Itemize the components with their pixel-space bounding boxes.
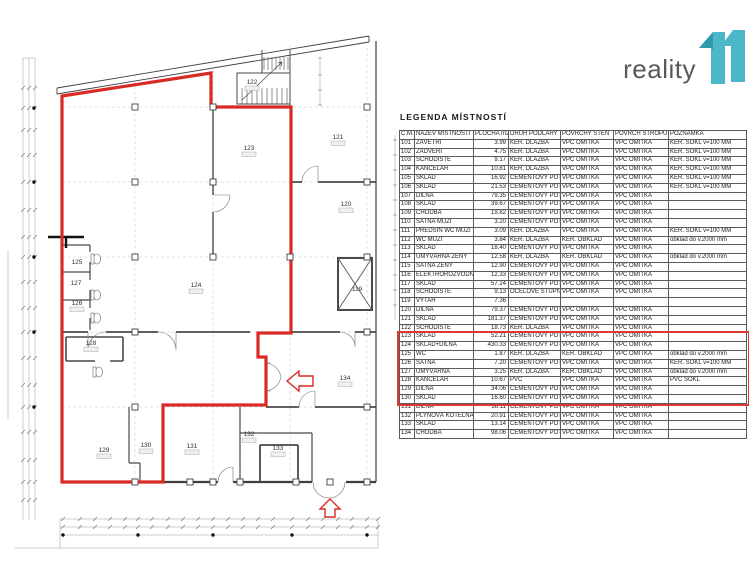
- legend-cell: 18.40: [474, 245, 509, 254]
- column-marker: [364, 404, 370, 410]
- column-marker: [187, 479, 193, 485]
- legend-cell: CEMENTOVÝ POTĚR: [509, 386, 561, 395]
- legend-cell: 109: [400, 210, 415, 219]
- legend-cell: SKLAD: [415, 280, 474, 289]
- legend-title: LEGENDA MÍSTNOSTÍ: [400, 112, 748, 122]
- column-marker: [132, 179, 138, 185]
- legend-cell: [669, 412, 747, 421]
- legend-cell: CHODBA: [415, 210, 474, 219]
- legend-cell: 1.87: [474, 350, 509, 359]
- column-marker: [364, 254, 370, 260]
- legend-cell: CEMENTOVÝ POTĚR: [509, 342, 561, 351]
- legend-row: 127UMÝVÁRNA3.25KER. DLAŽBAKER. OBKLADVPC…: [400, 368, 747, 377]
- legend-cell: 101: [400, 139, 415, 148]
- legend-cell: KER. SOKL v=100 MM: [669, 139, 747, 148]
- legend-cell: [669, 262, 747, 271]
- legend-cell: KER. SOKL v=100 MM: [669, 359, 747, 368]
- legend-cell: KER. DLAŽBA: [509, 350, 561, 359]
- legend-cell: 9.13: [474, 289, 509, 298]
- legend-cell: [669, 430, 747, 439]
- legend-cell: PŘEDSÍŇ WC MUŽI: [415, 227, 474, 236]
- legend-cell: VPC OMÍTKA: [614, 403, 669, 412]
- legend-cell: [669, 333, 747, 342]
- legend-cell: 13.14: [474, 421, 509, 430]
- legend-cell: 121: [400, 315, 415, 324]
- legend-cell: 12.58: [474, 254, 509, 263]
- legend-cell: 102: [400, 148, 415, 157]
- legend-cell: [669, 324, 747, 333]
- room-sublabel-box: [97, 454, 111, 459]
- legend-cell: 128: [400, 377, 415, 386]
- legend-cell: ZÁVĚTŘÍ: [415, 139, 474, 148]
- legend-cell: 116: [400, 271, 415, 280]
- legend-cell: VPC OMÍTKA: [561, 377, 614, 386]
- legend-cell: obklad do v.2000 mm: [669, 350, 747, 359]
- legend-cell: SKLAD: [415, 245, 474, 254]
- legend-cell: VPC OMÍTKA: [561, 430, 614, 439]
- plan-grid: [62, 45, 376, 482]
- legend-cell: 114: [400, 254, 415, 263]
- legend-col-header: POZNÁMKA: [669, 131, 747, 140]
- legend-cell: 127: [400, 368, 415, 377]
- legend-row: 132PLYNOVÁ KOTELNA20.91CEMENTOVÝ POTĚRVP…: [400, 412, 747, 421]
- legend-cell: 120: [400, 306, 415, 315]
- legend-cell: 3.20: [474, 218, 509, 227]
- room-label: 128: [86, 340, 97, 347]
- legend-cell: [669, 201, 747, 210]
- legend-cell: VPC OMÍTKA: [614, 430, 669, 439]
- legend-cell: VPC OMÍTKA: [614, 192, 669, 201]
- legend-row: 118SCHODIŠTĚ9.13OCELOVÉ STUPNĚVPC OMÍTKA…: [400, 289, 747, 298]
- logo-text: reality: [623, 56, 696, 86]
- legend-cell: VPC OMÍTKA: [561, 386, 614, 395]
- legend-cell: VPC OMÍTKA: [614, 245, 669, 254]
- column-marker: [364, 329, 370, 335]
- legend-col-header: POVRCHY STĚN: [561, 131, 614, 140]
- legend-cell: 105: [400, 174, 415, 183]
- column-marker: [210, 104, 216, 110]
- column-marker: [210, 254, 216, 260]
- legend-cell: 79.35: [474, 192, 509, 201]
- legend-cell: 52.21: [474, 333, 509, 342]
- legend-row: 110ŠATNA MUŽI3.20CEMENTOVÝ POTĚRVPC OMÍT…: [400, 218, 747, 227]
- legend-cell: 122: [400, 324, 415, 333]
- column-marker: [210, 179, 216, 185]
- legend-cell: 3.09: [474, 227, 509, 236]
- legend-cell: 7.20: [474, 359, 509, 368]
- legend-cell: 181.37: [474, 315, 509, 324]
- legend-cell: [669, 298, 747, 307]
- legend-cell: VPC OMÍTKA: [561, 210, 614, 219]
- legend-cell: SKLAD: [415, 174, 474, 183]
- legend-cell: [669, 342, 747, 351]
- legend-cell: CHODBA: [415, 430, 474, 439]
- legend-cell: VPC OMÍTKA: [561, 333, 614, 342]
- legend-cell: 124: [400, 342, 415, 351]
- legend-cell: VPC OMÍTKA: [614, 157, 669, 166]
- legend-cell: VPC OMÍTKA: [561, 148, 614, 157]
- legend-row: 111PŘEDSÍŇ WC MUŽI3.09KER. DLAŽBAVPC OMÍ…: [400, 227, 747, 236]
- room-sublabel-box: [331, 141, 345, 146]
- legend-cell: 115: [400, 262, 415, 271]
- legend-cell: 4.75: [474, 148, 509, 157]
- legend-cell: [669, 245, 747, 254]
- legend-cell: SKLAD: [415, 333, 474, 342]
- legend-cell: DÍLNA: [415, 386, 474, 395]
- legend-cell: 129: [400, 386, 415, 395]
- room-sublabel-box: [338, 382, 352, 387]
- legend-cell: 108: [400, 201, 415, 210]
- legend-cell: KER. DLAŽBA: [509, 236, 561, 245]
- legend-cell: 117: [400, 280, 415, 289]
- legend-row: 129DÍLNA34.06CEMENTOVÝ POTĚRVPC OMÍTKAVP…: [400, 386, 747, 395]
- legend-cell: VPC OMÍTKA: [614, 394, 669, 403]
- legend-cell: VPC OMÍTKA: [561, 139, 614, 148]
- legend-cell: SKLAD: [415, 421, 474, 430]
- section-marker: [48, 237, 84, 248]
- legend-cell: KER. DLAŽBA: [509, 324, 561, 333]
- legend-cell: 57.24: [474, 280, 509, 289]
- legend-cell: 104: [400, 166, 415, 175]
- legend-cell: VPC OMÍTKA: [614, 306, 669, 315]
- legend-cell: 126: [400, 359, 415, 368]
- legend-cell: [669, 210, 747, 219]
- legend-cell: 16.92: [474, 174, 509, 183]
- legend-col-header: NÁZEV MÍSTNOSTI: [415, 131, 474, 140]
- legend-cell: KER. SOKL v=100 MM: [669, 148, 747, 157]
- legend-cell: VPC OMÍTKA: [561, 359, 614, 368]
- room-sublabel-box: [245, 86, 259, 91]
- legend-cell: VPC OMÍTKA: [561, 421, 614, 430]
- legend-cell: SCHODIŠTĚ: [415, 289, 474, 298]
- legend-cell: VPC OMÍTKA: [614, 386, 669, 395]
- legend-row: 130SKLAD16.60CEMENTOVÝ POTĚRVPC OMÍTKAVP…: [400, 394, 747, 403]
- legend-cell: CEMENTOVÝ POTĚR: [509, 218, 561, 227]
- room-sublabel-box: [84, 347, 98, 352]
- legend-cell: KER. DLAŽBA: [509, 139, 561, 148]
- column-marker: [210, 479, 216, 485]
- legend-cell: 112: [400, 236, 415, 245]
- legend-cell: VPC OMÍTKA: [614, 412, 669, 421]
- legend-cell: VÝTAH: [415, 298, 474, 307]
- legend-cell: VPC OMÍTKA: [561, 201, 614, 210]
- legend-cell: 12.90: [474, 262, 509, 271]
- legend-cell: OCELOVÉ STUPNĚ: [509, 289, 561, 298]
- legend-cell: obklad do v.2000 mm: [669, 236, 747, 245]
- legend-col-header: PLOCHA m2: [474, 131, 509, 140]
- legend-cell: WC: [415, 350, 474, 359]
- column-marker: [364, 104, 370, 110]
- legend-cell: 119: [400, 298, 415, 307]
- legend-cell: KER. DLAŽBA: [509, 148, 561, 157]
- legend-panel: LEGENDA MÍSTNOSTÍ Č.M.NÁZEV MÍSTNOSTIPLO…: [399, 112, 748, 439]
- legend-cell: KER. DLAŽBA: [509, 368, 561, 377]
- legend-cell: VPC OMÍTKA: [561, 166, 614, 175]
- legend-cell: 111: [400, 227, 415, 236]
- legend-cell: KER. SOKL v=100 MM: [669, 157, 747, 166]
- legend-cell: SKLAD: [415, 183, 474, 192]
- room-sublabel-box: [271, 452, 285, 457]
- legend-cell: CEMENTOVÝ POTĚR: [509, 412, 561, 421]
- legend-row: 125WC1.87KER. DLAŽBAKER. OBKLADVPC OMÍTK…: [400, 350, 747, 359]
- room-label: 130: [141, 442, 152, 449]
- legend-cell: [669, 218, 747, 227]
- legend-cell: VPC OMÍTKA: [614, 315, 669, 324]
- elevator: [338, 258, 372, 310]
- legend-row: 122SCHODIŠTĚ18.73KER. DLAŽBAVPC OMÍTKAVP…: [400, 324, 747, 333]
- legend-row: 108SKLAD39.67CEMENTOVÝ POTĚRVPC OMÍTKAVP…: [400, 201, 747, 210]
- legend-col-header: POVRCH STROPU: [614, 131, 669, 140]
- legend-cell: CEMENTOVÝ POTĚR: [509, 359, 561, 368]
- legend-cell: PLYNOVÁ KOTELNA: [415, 412, 474, 421]
- legend-cell: 16.60: [474, 394, 509, 403]
- column-marker: [132, 404, 138, 410]
- logo: reality: [602, 24, 747, 86]
- legend-cell: 125: [400, 350, 415, 359]
- legend-cell: [669, 289, 747, 298]
- legend-cell: VPC OMÍTKA: [614, 280, 669, 289]
- column-marker: [293, 479, 299, 485]
- legend-cell: VPC OMÍTKA: [561, 289, 614, 298]
- highlight-outline: [62, 73, 291, 482]
- legend-cell: VPC OMÍTKA: [614, 359, 669, 368]
- column-marker: [132, 479, 138, 485]
- legend-cell: 10.67: [474, 377, 509, 386]
- room-label: 131: [187, 443, 198, 450]
- legend-cell: VPC OMÍTKA: [614, 227, 669, 236]
- legend-cell: 34.06: [474, 386, 509, 395]
- legend-cell: VPC OMÍTKA: [561, 324, 614, 333]
- legend-cell: obklad do v.2000 mm: [669, 254, 747, 263]
- legend-cell: KER. OBKLAD: [561, 368, 614, 377]
- legend-cell: 110: [400, 218, 415, 227]
- legend-cell: VPC OMÍTKA: [561, 342, 614, 351]
- room-sublabel-box: [242, 152, 256, 157]
- room-label: 121: [333, 134, 344, 141]
- room-label: 119: [352, 286, 363, 293]
- room-label: 120: [341, 201, 352, 208]
- legend-cell: DÍLNA: [415, 403, 474, 412]
- column-marker: [237, 479, 243, 485]
- entrance-arrows: [287, 371, 340, 517]
- legend-cell: KER. OBKLAD: [561, 236, 614, 245]
- column-marker: [364, 479, 370, 485]
- building-outline: [57, 36, 376, 482]
- legend-cell: 10.81: [474, 166, 509, 175]
- legend-cell: KER. DLAŽBA: [509, 166, 561, 175]
- legend-cell: DÍLNA: [415, 192, 474, 201]
- legend-row: 102ZÁDVEŘÍ4.75KER. DLAŽBAVPC OMÍTKAVPC O…: [400, 148, 747, 157]
- room-label: 126: [72, 300, 83, 307]
- legend-cell: SKLAD: [415, 201, 474, 210]
- legend-cell: 79.37: [474, 306, 509, 315]
- legend-cell: KER. OBKLAD: [561, 350, 614, 359]
- column-marker: [364, 179, 370, 185]
- legend-cell: [669, 403, 747, 412]
- legend-cell: obklad do v.2000 mm: [669, 368, 747, 377]
- legend-cell: 107: [400, 192, 415, 201]
- legend-row: 119VÝTAH7.36: [400, 298, 747, 307]
- arrow-left-icon: [287, 371, 313, 391]
- legend-cell: VPC OMÍTKA: [561, 262, 614, 271]
- legend-cell: 103: [400, 157, 415, 166]
- legend-cell: VPC OMÍTKA: [614, 271, 669, 280]
- legend-cell: 133: [400, 421, 415, 430]
- legend-cell: KANCELÁŘ: [415, 377, 474, 386]
- legend-row: 106SKLAD21.53CEMENTOVÝ POTĚRVPC OMÍTKAVP…: [400, 183, 747, 192]
- legend-row: 104KANCELÁŘ10.81KER. DLAŽBAVPC OMÍTKAVPC…: [400, 166, 747, 175]
- legend-cell: ŠATNA ŽENY: [415, 262, 474, 271]
- legend-cell: VPC OMÍTKA: [561, 394, 614, 403]
- legend-cell: [669, 315, 747, 324]
- legend-cell: KANCELÁŘ: [415, 166, 474, 175]
- legend-row: 123SKLAD52.21CEMENTOVÝ POTĚRVPC OMÍTKAVP…: [400, 333, 747, 342]
- legend-cell: VPC OMÍTKA: [561, 227, 614, 236]
- legend-row: 115ŠATNA ŽENY12.90CEMENTOVÝ POTĚRVPC OMÍ…: [400, 262, 747, 271]
- legend-cell: ZÁDVEŘÍ: [415, 148, 474, 157]
- legend-cell: KER. SOKL v=100 MM: [669, 227, 747, 236]
- legend-cell: VPC OMÍTKA: [561, 174, 614, 183]
- legend-cell: ŠATNA: [415, 359, 474, 368]
- legend-cell: CEMENTOVÝ POTĚR: [509, 271, 561, 280]
- column-marker: [327, 479, 333, 485]
- legend-cell: [669, 271, 747, 280]
- legend-cell: ELEKTROROZVODNA: [415, 271, 474, 280]
- legend-cell: CEMENTOVÝ POTĚR: [509, 333, 561, 342]
- legend-cell: VPC OMÍTKA: [614, 148, 669, 157]
- legend-cell: 134: [400, 430, 415, 439]
- legend-cell: WC MUŽI: [415, 236, 474, 245]
- legend-row: 126ŠATNA7.20CEMENTOVÝ POTĚRVPC OMÍTKAVPC…: [400, 359, 747, 368]
- room-label: 123: [244, 145, 255, 152]
- room-sublabel-box: [70, 307, 84, 312]
- floor-plan: 1191201211221231241251271261281291301311…: [0, 0, 400, 562]
- legend-cell: VPC OMÍTKA: [614, 289, 669, 298]
- legend-cell: 106: [400, 183, 415, 192]
- legend-cell: CEMENTOVÝ POTĚR: [509, 183, 561, 192]
- room-labels: 1191201211221231241251271261281291301311…: [70, 79, 363, 459]
- legend-row: 112WC MUŽI3.84KER. DLAŽBAKER. OBKLADVPC …: [400, 236, 747, 245]
- legend-cell: VPC OMÍTKA: [561, 183, 614, 192]
- room-label: 125: [72, 259, 83, 266]
- room-label: 127: [71, 280, 82, 287]
- legend-cell: VPC OMÍTKA: [614, 166, 669, 175]
- legend-cell: [669, 394, 747, 403]
- legend-cell: VPC OMÍTKA: [614, 236, 669, 245]
- legend-cell: VPC OMÍTKA: [561, 192, 614, 201]
- legend-table: Č.M.NÁZEV MÍSTNOSTIPLOCHA m2DRUH PODLAHY…: [399, 130, 747, 439]
- legend-cell: VPC OMÍTKA: [614, 377, 669, 386]
- legend-row: 120DÍLNA79.37CEMENTOVÝ POTĚRVPC OMÍTKAVP…: [400, 306, 747, 315]
- legend-row: 101ZÁVĚTŘÍ3.99KER. DLAŽBAVPC OMÍTKAVPC O…: [400, 139, 747, 148]
- legend-cell: SKLAD: [415, 394, 474, 403]
- legend-cell: CEMENTOVÝ POTĚR: [509, 192, 561, 201]
- legend-cell: SKLAD+DÍLNA: [415, 342, 474, 351]
- legend-cell: CEMENTOVÝ POTĚR: [509, 403, 561, 412]
- legend-cell: KER. SOKL v=100 MM: [669, 166, 747, 175]
- legend-row: 131DÍLNA38.11CEMENTOVÝ POTĚRVPC OMÍTKAVP…: [400, 403, 747, 412]
- room-label: 122: [247, 79, 258, 86]
- room-sublabel-box: [189, 289, 203, 294]
- legend-cell: VPC OMÍTKA: [614, 218, 669, 227]
- legend-cell: DÍLNA: [415, 306, 474, 315]
- dimension-lines: [8, 58, 395, 548]
- legend-cell: VPC OMÍTKA: [614, 210, 669, 219]
- legend-cell: VPC OMÍTKA: [561, 157, 614, 166]
- legend-cell: CEMENTOVÝ POTĚR: [509, 394, 561, 403]
- legend-cell: CEMENTOVÝ POTĚR: [509, 262, 561, 271]
- legend-cell: PVC SOKL: [669, 377, 747, 386]
- legend-cell: VPC OMÍTKA: [614, 333, 669, 342]
- room-label: 124: [191, 282, 202, 289]
- legend-cell: 123: [400, 333, 415, 342]
- legend-cell: CEMENTOVÝ POTĚR: [509, 280, 561, 289]
- legend-cell: 430.33: [474, 342, 509, 351]
- legend-cell: VPC OMÍTKA: [614, 342, 669, 351]
- legend-cell: VPC OMÍTKA: [561, 412, 614, 421]
- legend-cell: VPC OMÍTKA: [614, 174, 669, 183]
- legend-cell: VPC OMÍTKA: [614, 350, 669, 359]
- legend-cell: VPC OMÍTKA: [561, 245, 614, 254]
- legend-cell: VPC OMÍTKA: [561, 271, 614, 280]
- legend-cell: 18.73: [474, 324, 509, 333]
- legend-row: 105SKLAD16.92CEMENTOVÝ POTĚRVPC OMÍTKAVP…: [400, 174, 747, 183]
- legend-cell: CEMENTOVÝ POTĚR: [509, 306, 561, 315]
- legend-cell: VPC OMÍTKA: [561, 306, 614, 315]
- dimension-ticks: [21, 58, 397, 537]
- legend-cell: CEMENTOVÝ POTĚR: [509, 174, 561, 183]
- legend-cell: UMÝVÁRNA: [415, 368, 474, 377]
- legend-cell: KER. DLAŽBA: [509, 157, 561, 166]
- legend-cell: VPC OMÍTKA: [614, 368, 669, 377]
- legend-row: 124SKLAD+DÍLNA430.33CEMENTOVÝ POTĚRVPC O…: [400, 342, 747, 351]
- legend-cell: VPC OMÍTKA: [561, 218, 614, 227]
- stairs: [237, 57, 290, 104]
- legend-cell: 9.17: [474, 157, 509, 166]
- column-marker: [132, 104, 138, 110]
- legend-cell: VPC OMÍTKA: [614, 201, 669, 210]
- legend-cell: 7.36: [474, 298, 509, 307]
- interior-walls: [62, 50, 376, 482]
- room-sublabel-box: [139, 449, 153, 454]
- legend-cell: CEMENTOVÝ POTĚR: [509, 421, 561, 430]
- legend-cell: VPC OMÍTKA: [614, 324, 669, 333]
- legend-cell: 98.06: [474, 430, 509, 439]
- legend-cell: 3.25: [474, 368, 509, 377]
- column-marker: [132, 329, 138, 335]
- legend-row: 134CHODBA98.06CEMENTOVÝ POTĚRVPC OMÍTKAV…: [400, 430, 747, 439]
- column-marker: [132, 254, 138, 260]
- fixtures: [91, 254, 103, 377]
- legend-cell: PVC: [509, 377, 561, 386]
- legend-cell: 20.91: [474, 412, 509, 421]
- legend-cell: [669, 421, 747, 430]
- legend-cell: [669, 280, 747, 289]
- legend-cell: CEMENTOVÝ POTĚR: [509, 430, 561, 439]
- page: 1191201211221231241251271261281291301311…: [0, 0, 749, 562]
- legend-cell: VPC OMÍTKA: [561, 403, 614, 412]
- logo-mark-11-icon: [699, 28, 747, 86]
- legend-cell: SCHODIŠTĚ: [415, 324, 474, 333]
- room-label: 132: [244, 431, 255, 438]
- legend-cell: VPC OMÍTKA: [561, 315, 614, 324]
- legend-cell: 3.84: [474, 236, 509, 245]
- legend-cell: [509, 298, 561, 307]
- room-sublabel-box: [185, 450, 199, 455]
- legend-cell: 132: [400, 412, 415, 421]
- legend-row: 121SKLAD181.37CEMENTOVÝ POTĚRVPC OMÍTKAV…: [400, 315, 747, 324]
- legend-row: 116ELEKTROROZVODNA12.33CEMENTOVÝ POTĚRVP…: [400, 271, 747, 280]
